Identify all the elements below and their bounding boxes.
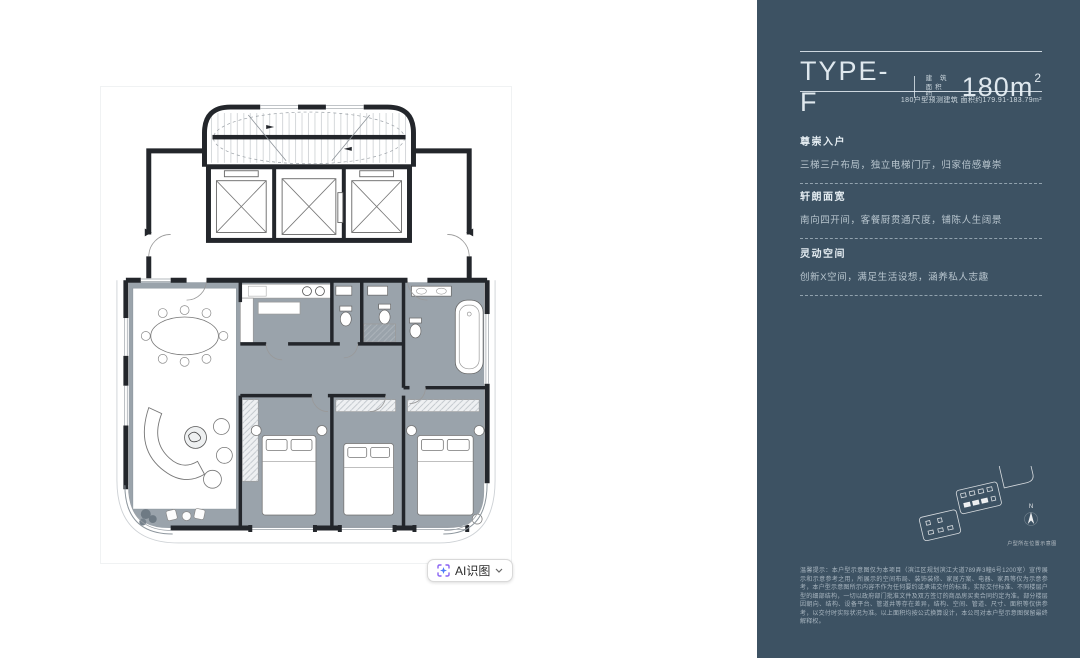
ai-image-search-button[interactable]: AI识图 — [427, 559, 513, 582]
section-heading: 轩朗面宽 — [800, 188, 1042, 203]
feature-section-entry: 尊崇入户 三梯三户布局，独立电梯门厅，归家倍感尊崇 — [800, 133, 1042, 184]
title-rule-top — [800, 51, 1042, 52]
floor-plan-drawing — [101, 87, 511, 563]
section-heading: 尊崇入户 — [800, 133, 1042, 148]
site-locator-diagram: N — [915, 466, 1055, 541]
section-body: 创新X空间，满足生活设想，涵养私人志趣 — [800, 269, 1042, 283]
info-panel: TYPE-F 建 筑 面积约 180m2 180户型预测建筑 面积约179.91… — [757, 0, 1080, 658]
unit-type-title: TYPE-F 建 筑 面积约 180m2 — [800, 56, 1042, 118]
dashed-divider — [800, 238, 1042, 239]
section-heading: 灵动空间 — [800, 245, 1042, 260]
title-rule-bottom — [800, 91, 1042, 92]
feature-section-flex-space: 灵动空间 创新X空间，满足生活设想，涵养私人志趣 — [800, 245, 1042, 296]
chevron-down-icon[interactable] — [495, 568, 503, 573]
area-range-subtitle: 180户型预测建筑 面积约179.91-183.79m² — [901, 95, 1042, 105]
compass-needle-icon — [1028, 512, 1034, 524]
type-name: TYPE-F — [800, 56, 903, 118]
screen: AI识图 TYPE-F 建 筑 面积约 180m2 180户型预测建筑 面积约1… — [0, 0, 1080, 658]
disclaimer-text: 温馨提示：本户型示意图仅为本项目（滨江区规划滨江大道789弄3幢6号1200室）… — [800, 567, 1048, 627]
ai-scan-icon — [437, 564, 450, 577]
section-body: 三梯三户布局，独立电梯门厅，归家倍感尊崇 — [800, 157, 1042, 171]
compass-n-label: N — [1029, 504, 1033, 510]
feature-section-width: 轩朗面宽 南向四开间，客餐厨贯通尺度，铺陈人生阔景 — [800, 188, 1042, 239]
floor-plan-card — [100, 86, 512, 564]
area-superscript: 2 — [1034, 71, 1042, 85]
dashed-divider — [800, 183, 1042, 184]
section-body: 南向四开间，客餐厨贯通尺度，铺陈人生阔景 — [800, 212, 1042, 226]
locator-caption: 户型所在位置示意图 — [992, 540, 1072, 547]
dashed-divider — [800, 295, 1042, 296]
ai-button-label: AI识图 — [455, 565, 490, 577]
